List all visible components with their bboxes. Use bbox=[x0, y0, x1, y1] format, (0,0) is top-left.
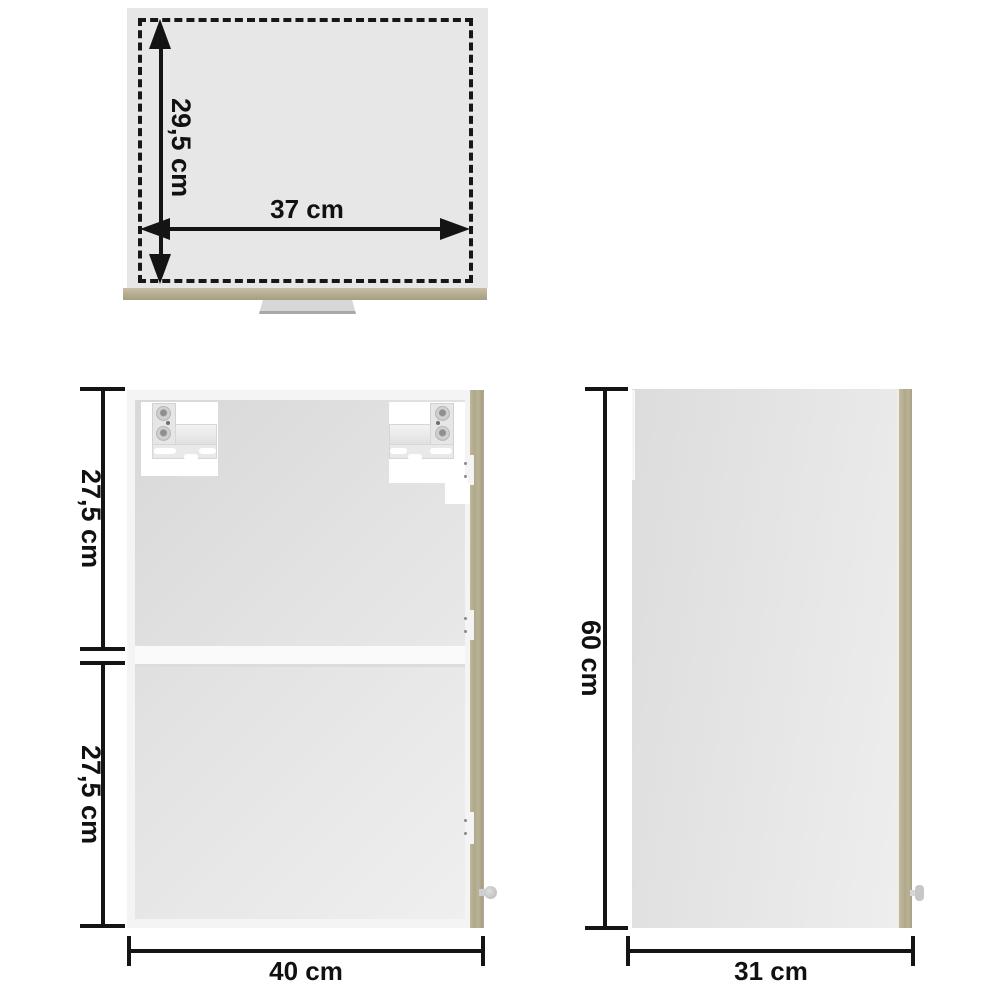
front-view-upper-height-label: 27,5 cm bbox=[75, 469, 106, 568]
screw-icon bbox=[156, 426, 171, 441]
bracket-slot bbox=[199, 448, 216, 454]
bracket-rail bbox=[175, 424, 217, 445]
side-view-depth-label: 31 cm bbox=[686, 956, 856, 987]
bracket-slot bbox=[390, 448, 407, 454]
hinge-icon bbox=[468, 610, 474, 640]
wall-bracket-left-graphic bbox=[141, 402, 218, 476]
door-knob-icon bbox=[484, 886, 497, 899]
dimension-tick bbox=[80, 661, 125, 665]
dimension-diagram: 29,5 cm 37 cm bbox=[0, 0, 1000, 1000]
width-dimension-line bbox=[158, 227, 454, 231]
bracket-rail bbox=[389, 424, 431, 445]
arrow-right-icon bbox=[440, 218, 470, 240]
dimension-tick bbox=[585, 387, 628, 391]
hinge-dots-icon bbox=[464, 819, 467, 822]
dimension-tick bbox=[626, 936, 630, 966]
front-view-shelf bbox=[135, 646, 465, 667]
front-view-lower-height-label: 27,5 cm bbox=[75, 745, 106, 844]
side-view-height-label: 60 cm bbox=[575, 620, 606, 697]
wall-bracket-left bbox=[141, 402, 218, 476]
dimension-tick bbox=[80, 647, 125, 651]
top-view-wood-front-edge bbox=[123, 288, 487, 300]
front-view-width-label: 40 cm bbox=[221, 956, 391, 987]
hinge-icon bbox=[468, 812, 474, 844]
arrow-up-icon bbox=[149, 19, 171, 49]
side-depth-dimension-line bbox=[628, 949, 915, 953]
top-view-door-handle bbox=[259, 300, 356, 314]
arrow-left-icon bbox=[140, 218, 170, 240]
screw-icon bbox=[435, 406, 450, 421]
side-view-edge-highlight bbox=[632, 390, 635, 480]
hinge-dots-icon bbox=[464, 617, 467, 620]
dimension-tick bbox=[585, 926, 628, 930]
dimension-tick bbox=[481, 936, 485, 966]
dimension-tick bbox=[80, 387, 125, 391]
dimension-tick bbox=[80, 924, 125, 928]
bracket-slot bbox=[184, 454, 198, 460]
top-view-depth-label: 29,5 cm bbox=[165, 98, 196, 197]
arrow-down-icon bbox=[149, 254, 171, 284]
bracket-slot bbox=[154, 448, 176, 454]
hinge-dots-icon bbox=[464, 462, 467, 465]
bracket-slot bbox=[408, 454, 422, 460]
screw-icon bbox=[156, 406, 171, 421]
hinge-icon bbox=[468, 455, 474, 485]
top-view-width-label: 37 cm bbox=[222, 194, 392, 225]
wall-bracket-right bbox=[389, 402, 465, 483]
screw-dot-icon bbox=[436, 421, 440, 425]
wall-bracket-right-graphic bbox=[389, 402, 465, 483]
screw-dot-icon bbox=[166, 421, 170, 425]
side-view-panel bbox=[632, 389, 897, 928]
dimension-tick bbox=[911, 936, 915, 966]
front-width-dimension-line bbox=[127, 949, 485, 953]
bracket-slot bbox=[430, 448, 452, 454]
side-view-wood-front-edge bbox=[897, 389, 912, 928]
dimension-tick bbox=[127, 936, 131, 966]
side-knob-icon bbox=[915, 885, 924, 901]
screw-icon bbox=[435, 426, 450, 441]
